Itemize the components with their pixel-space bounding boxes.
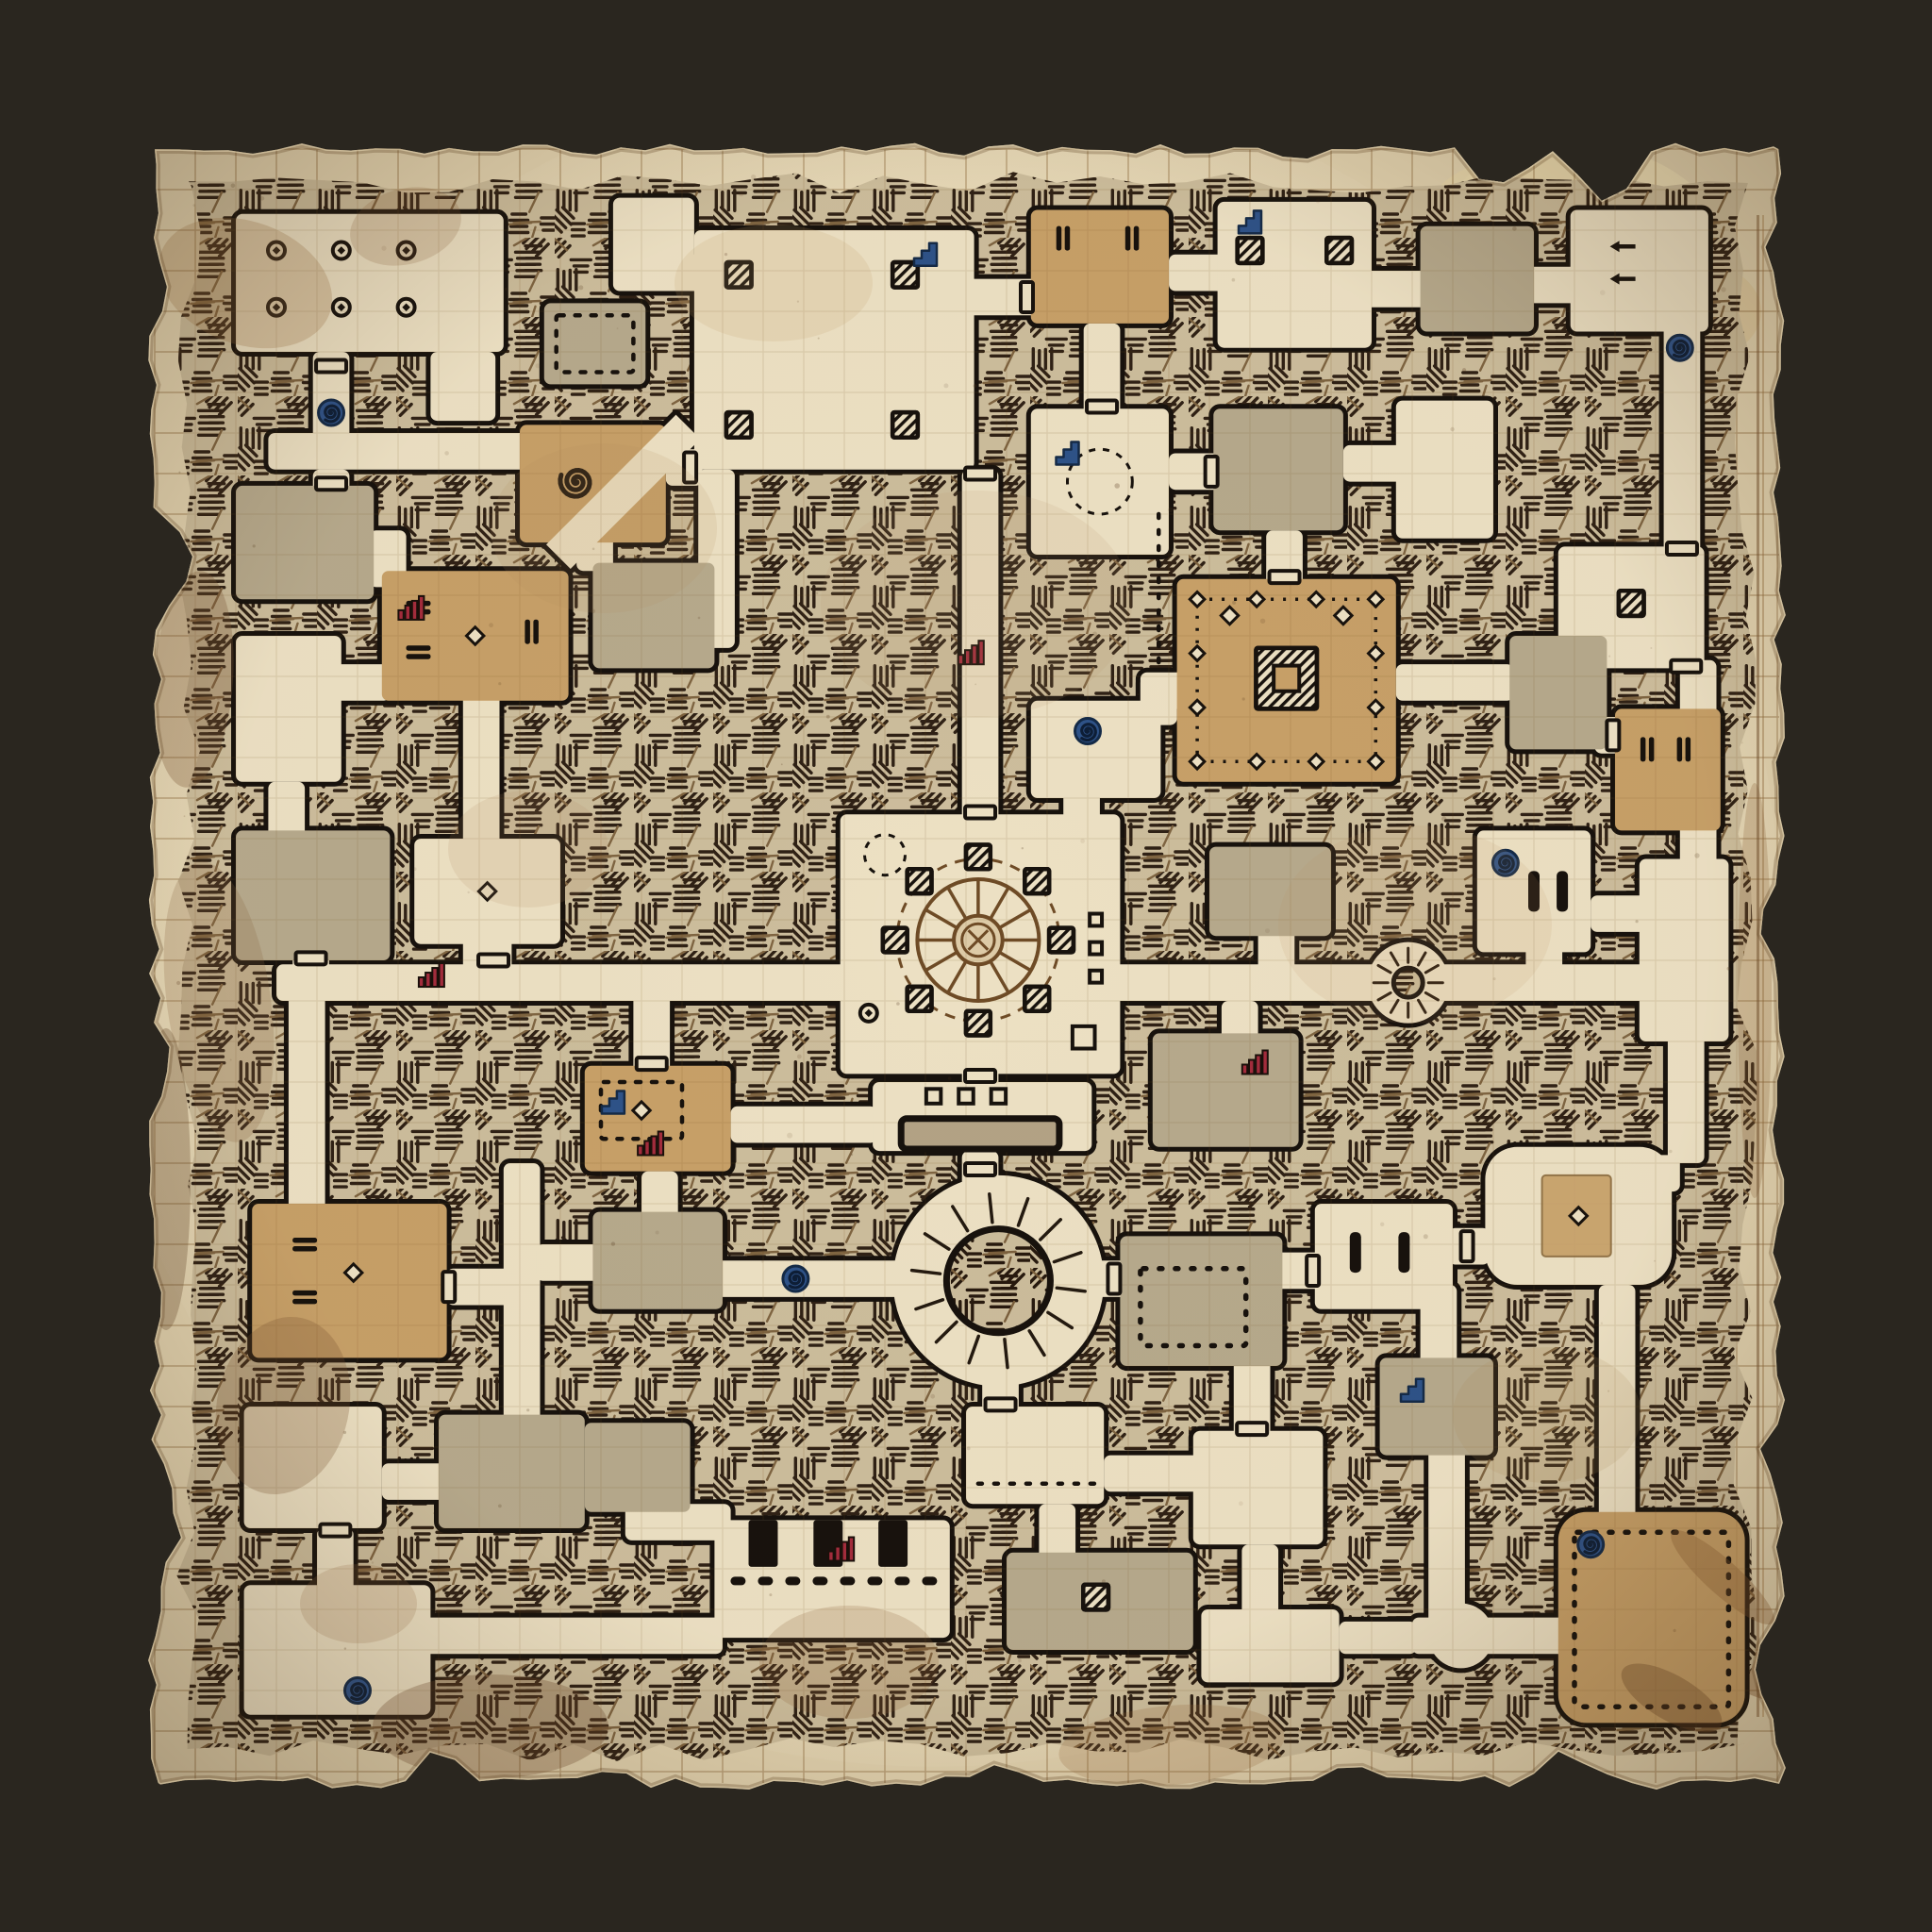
parchment-sheet: [90, 67, 1801, 1802]
vignette: [136, 130, 1798, 1802]
sheet-edge-line: [1762, 215, 1764, 1717]
sheet-edge-line: [1757, 215, 1759, 1717]
dungeon-map-svg: [0, 0, 1932, 1932]
dungeon-map-canvas: [0, 0, 1932, 1932]
